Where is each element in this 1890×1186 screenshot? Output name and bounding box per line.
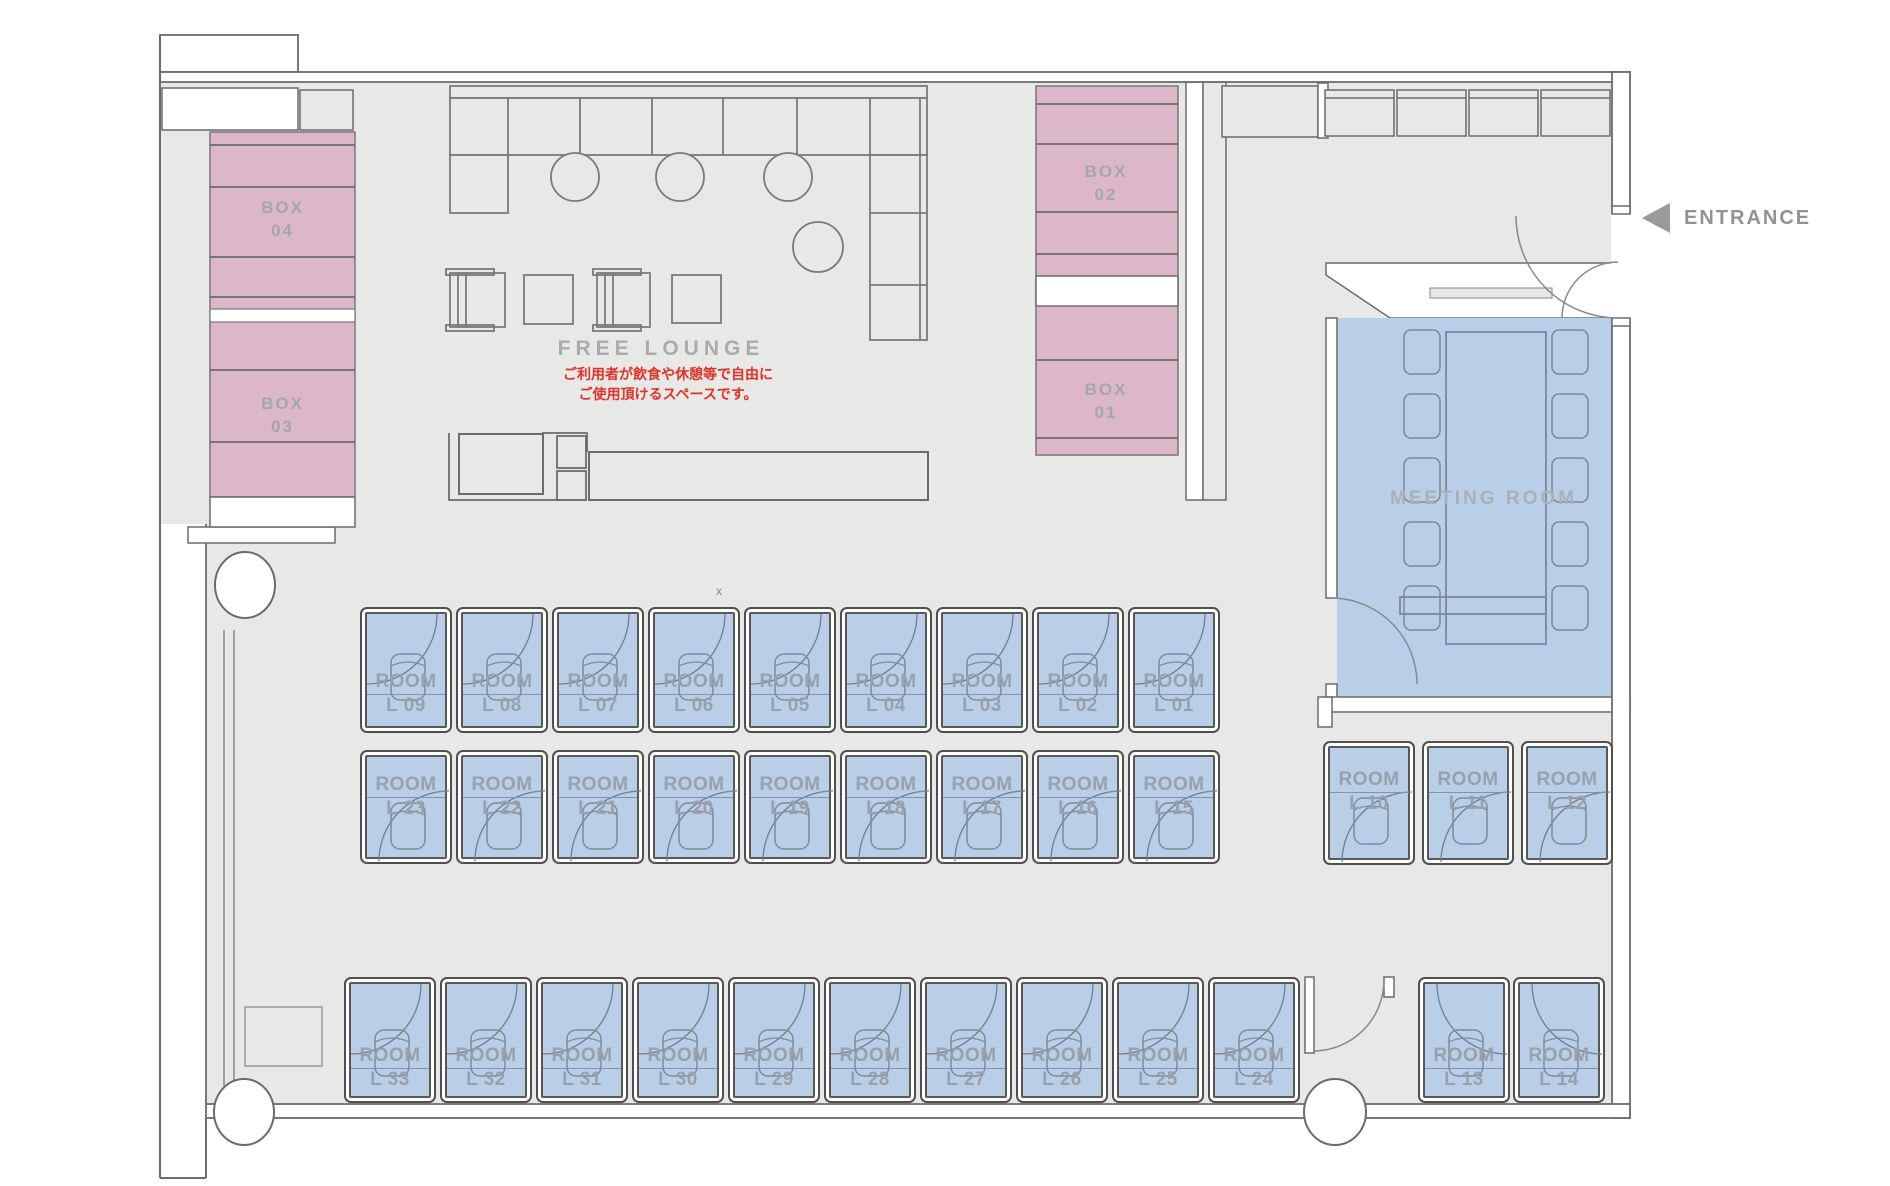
room-cell-l-09: ROOML 09 <box>360 607 452 733</box>
room-floor: ROOML 21 <box>557 755 639 859</box>
room-floor: ROOML 31 <box>541 982 623 1098</box>
room-label: ROOM <box>1215 1046 1293 1066</box>
door-arc-icon <box>1023 984 1093 1054</box>
room-number: L 12 <box>1528 794 1606 814</box>
room-label: ROOM <box>655 775 733 795</box>
room-number: L 26 <box>1023 1070 1101 1090</box>
floor-plan: BOX04 BOX03 BOX02 BOX01 FREE LOUNGE ご利用者… <box>0 0 1890 1186</box>
room-label: ROOM <box>1330 770 1408 790</box>
room-label: ROOM <box>367 672 445 692</box>
meeting-room-lower-wall <box>1326 697 1630 712</box>
room-label: ROOM <box>1023 1046 1101 1066</box>
left-void <box>161 524 206 1104</box>
room-number: L 01 <box>1135 696 1213 716</box>
room-floor: ROOML 01 <box>1133 612 1215 728</box>
partition-wall-2 <box>1203 82 1226 500</box>
room-floor: ROOML 29 <box>733 982 815 1098</box>
room-cell-l-08: ROOML 08 <box>456 607 548 733</box>
chair-back-icon <box>679 662 713 666</box>
room-number: L 20 <box>655 799 733 819</box>
room-number: L 33 <box>351 1070 429 1090</box>
room-number: L 30 <box>639 1070 717 1090</box>
free-lounge-label: FREE LOUNGE <box>558 337 765 361</box>
room-cell-l-27: ROOML 27 <box>920 977 1012 1103</box>
room-cell-l-28: ROOML 28 <box>824 977 916 1103</box>
door-arc-icon <box>1437 984 1507 1054</box>
room-label: ROOM <box>927 1046 1005 1066</box>
x-marker: x <box>716 584 722 598</box>
room-cell-l-12: ROOML 12 <box>1521 741 1613 865</box>
room-number: L 23 <box>367 799 445 819</box>
room-floor: ROOML 24 <box>1213 982 1295 1098</box>
room-cell-l-23: ROOML 23 <box>360 750 452 864</box>
room-number: L 27 <box>927 1070 1005 1090</box>
room-floor: ROOML 22 <box>461 755 543 859</box>
room-floor: ROOML 14 <box>1518 982 1600 1098</box>
room-cell-l-24: ROOML 24 <box>1208 977 1300 1103</box>
room-number: L 03 <box>943 696 1021 716</box>
room-number: L 24 <box>1215 1070 1293 1090</box>
room-number: L 19 <box>751 799 829 819</box>
door-arc-icon <box>735 984 805 1054</box>
room-floor: ROOML 03 <box>941 612 1023 728</box>
room-floor: ROOML 32 <box>445 982 527 1098</box>
room-label: ROOM <box>367 775 445 795</box>
room-floor: ROOML 09 <box>365 612 447 728</box>
room-label: ROOM <box>559 672 637 692</box>
room-cell-l-25: ROOML 25 <box>1112 977 1204 1103</box>
room-number: L 07 <box>559 696 637 716</box>
room-number: L 25 <box>1119 1070 1197 1090</box>
room-floor: ROOML 28 <box>829 982 911 1098</box>
room-floor: ROOML 13 <box>1423 982 1505 1098</box>
chair-back-icon <box>967 662 1001 666</box>
room-cell-l-30: ROOML 30 <box>632 977 724 1103</box>
room-cell-l-33: ROOML 33 <box>344 977 436 1103</box>
free-lounge-note: ご利用者が飲食や休憩等で自由にご使用頂けるスペースです。 <box>563 364 773 404</box>
room-number: L 08 <box>463 696 541 716</box>
room-floor: ROOML 30 <box>637 982 719 1098</box>
door-arc-icon <box>1215 984 1285 1054</box>
room-floor: ROOML 04 <box>845 612 927 728</box>
room-floor: ROOML 12 <box>1526 746 1608 860</box>
room-label: ROOM <box>943 775 1021 795</box>
room-floor: ROOML 27 <box>925 982 1007 1098</box>
room-cell-l-18: ROOML 18 <box>840 750 932 864</box>
room-floor: ROOML 05 <box>749 612 831 728</box>
room-cell-l-31: ROOML 31 <box>536 977 628 1103</box>
room-number: L 11 <box>1429 794 1507 814</box>
box-04-label: BOX04 <box>210 196 355 242</box>
room-cell-l-03: ROOML 03 <box>936 607 1028 733</box>
room-label: ROOM <box>1039 672 1117 692</box>
room-floor: ROOML 23 <box>365 755 447 859</box>
meeting-room-label: MEETING ROOM <box>1337 488 1630 510</box>
chair-back-icon <box>391 662 425 666</box>
door-arc-icon <box>543 984 613 1054</box>
door-arc-icon <box>1532 984 1602 1054</box>
room-label: ROOM <box>543 1046 621 1066</box>
room-label: ROOM <box>1135 775 1213 795</box>
room-cell-l-13: ROOML 13 <box>1418 977 1510 1103</box>
room-floor: ROOML 20 <box>653 755 735 859</box>
room-label: ROOM <box>735 1046 813 1066</box>
room-cell-l-22: ROOML 22 <box>456 750 548 864</box>
box-02-label: BOX02 <box>1035 160 1177 206</box>
room-floor: ROOML 11 <box>1427 746 1509 860</box>
chair-back-icon <box>583 662 617 666</box>
room-label: ROOM <box>1039 775 1117 795</box>
room-floor: ROOML 26 <box>1021 982 1103 1098</box>
box-03-label: BOX03 <box>210 392 355 438</box>
room-floor: ROOML 08 <box>461 612 543 728</box>
chair-back-icon <box>871 662 905 666</box>
room-floor: ROOML 02 <box>1037 612 1119 728</box>
room-floor: ROOML 33 <box>349 982 431 1098</box>
room-number: L 06 <box>655 696 733 716</box>
door-arc-icon <box>447 984 517 1054</box>
room-label: ROOM <box>351 1046 429 1066</box>
chair-back-icon <box>1159 662 1193 666</box>
room-cell-l-01: ROOML 01 <box>1128 607 1220 733</box>
room-cell-l-26: ROOML 26 <box>1016 977 1108 1103</box>
room-number: L 14 <box>1520 1070 1598 1090</box>
room-number: L 02 <box>1039 696 1117 716</box>
entrance-arrow-icon <box>1642 203 1670 233</box>
room-label: ROOM <box>831 1046 909 1066</box>
door-arc-icon <box>927 984 997 1054</box>
room-label: ROOM <box>847 672 925 692</box>
box-01-label: BOX01 <box>1035 378 1177 424</box>
room-cell-l-21: ROOML 21 <box>552 750 644 864</box>
room-cell-l-10: ROOML 10 <box>1323 741 1415 865</box>
room-cell-l-16: ROOML 16 <box>1032 750 1124 864</box>
room-cell-l-11: ROOML 11 <box>1422 741 1514 865</box>
room-cell-l-04: ROOML 04 <box>840 607 932 733</box>
room-number: L 28 <box>831 1070 909 1090</box>
chair-back-icon <box>487 662 521 666</box>
room-floor: ROOML 19 <box>749 755 831 859</box>
room-label: ROOM <box>751 775 829 795</box>
room-cell-l-05: ROOML 05 <box>744 607 836 733</box>
room-label: ROOM <box>1528 770 1606 790</box>
room-label: ROOM <box>751 672 829 692</box>
room-cell-l-14: ROOML 14 <box>1513 977 1605 1103</box>
floor-item <box>245 1007 322 1066</box>
room-label: ROOM <box>1429 770 1507 790</box>
room-label: ROOM <box>1425 1046 1503 1066</box>
room-label: ROOM <box>943 672 1021 692</box>
room-cell-l-07: ROOML 07 <box>552 607 644 733</box>
room-label: ROOM <box>447 1046 525 1066</box>
door-arc-icon <box>351 984 421 1054</box>
room-number: L 05 <box>751 696 829 716</box>
lockers <box>1222 83 1610 138</box>
room-number: L 18 <box>847 799 925 819</box>
room-number: L 09 <box>367 696 445 716</box>
room-floor: ROOML 16 <box>1037 755 1119 859</box>
room-floor: ROOML 15 <box>1133 755 1215 859</box>
room-number: L 16 <box>1039 799 1117 819</box>
room-floor: ROOML 06 <box>653 612 735 728</box>
room-label: ROOM <box>1135 672 1213 692</box>
room-label: ROOM <box>1119 1046 1197 1066</box>
room-number: L 21 <box>559 799 637 819</box>
door-arc-icon <box>1119 984 1189 1054</box>
room-label: ROOM <box>463 775 541 795</box>
room-number: L 32 <box>447 1070 525 1090</box>
room-number: L 29 <box>735 1070 813 1090</box>
door-arc-icon <box>831 984 901 1054</box>
room-label: ROOM <box>1520 1046 1598 1066</box>
room-number: L 17 <box>943 799 1021 819</box>
room-floor: ROOML 25 <box>1117 982 1199 1098</box>
room-label: ROOM <box>559 775 637 795</box>
chair-back-icon <box>1063 662 1097 666</box>
room-cell-l-02: ROOML 02 <box>1032 607 1124 733</box>
room-cell-l-17: ROOML 17 <box>936 750 1028 864</box>
room-cell-l-32: ROOML 32 <box>440 977 532 1103</box>
room-label: ROOM <box>463 672 541 692</box>
room-floor: ROOML 10 <box>1328 746 1410 860</box>
room-floor: ROOML 07 <box>557 612 639 728</box>
room-cell-l-06: ROOML 06 <box>648 607 740 733</box>
room-cell-l-15: ROOML 15 <box>1128 750 1220 864</box>
wall-step <box>188 527 335 543</box>
room-number: L 13 <box>1425 1070 1503 1090</box>
room-label: ROOM <box>639 1046 717 1066</box>
room-floor: ROOML 17 <box>941 755 1023 859</box>
room-number: L 15 <box>1135 799 1213 819</box>
partition-wall <box>1186 82 1203 500</box>
room-number: L 31 <box>543 1070 621 1090</box>
room-label: ROOM <box>655 672 733 692</box>
room-label: ROOM <box>847 775 925 795</box>
chair-back-icon <box>775 662 809 666</box>
room-number: L 22 <box>463 799 541 819</box>
room-floor: ROOML 18 <box>845 755 927 859</box>
box-column-left <box>210 132 355 527</box>
room-cell-l-29: ROOML 29 <box>728 977 820 1103</box>
door-arc-icon <box>639 984 709 1054</box>
room-cell-l-20: ROOML 20 <box>648 750 740 864</box>
room-number: L 04 <box>847 696 925 716</box>
meeting-room-threshold <box>1430 288 1552 298</box>
entrance-label: ENTRANCE <box>1684 207 1811 230</box>
room-number: L 10 <box>1330 794 1408 814</box>
room-cell-l-19: ROOML 19 <box>744 750 836 864</box>
